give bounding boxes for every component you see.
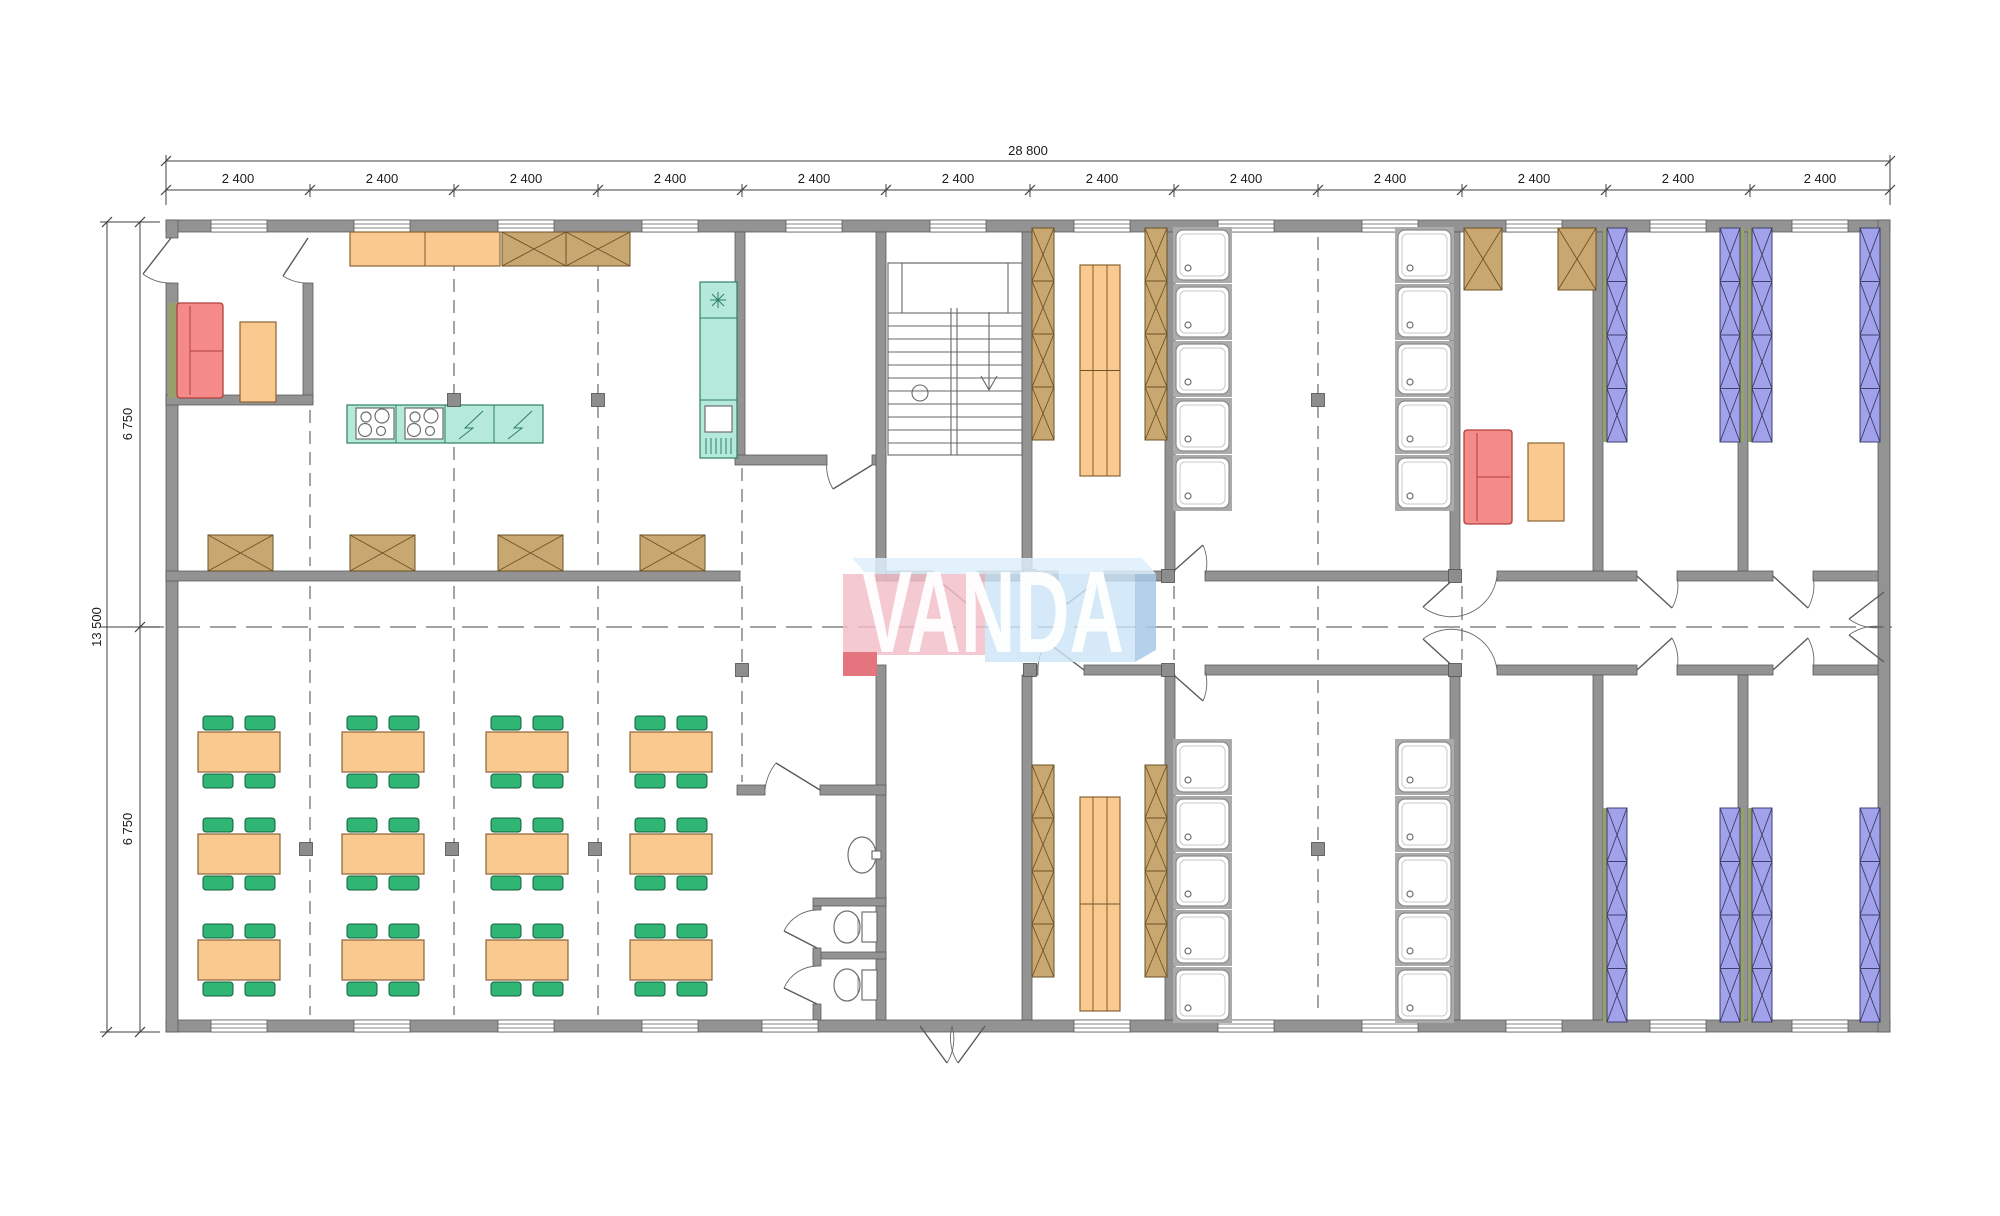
dining-chair bbox=[491, 924, 521, 938]
dining-chair bbox=[389, 716, 419, 730]
door bbox=[1637, 576, 1678, 608]
dim-label-bay: 2 400 bbox=[1086, 171, 1119, 186]
wall-segment bbox=[166, 220, 1890, 232]
wall-segment bbox=[813, 952, 886, 959]
door bbox=[827, 460, 872, 489]
dining-table bbox=[342, 834, 424, 874]
lounge-cabinet bbox=[1558, 228, 1596, 290]
dining-chair bbox=[677, 774, 707, 788]
bunk-bed-column bbox=[1720, 228, 1744, 442]
shower-stall bbox=[1395, 853, 1454, 909]
dining-table bbox=[342, 940, 424, 980]
window bbox=[1074, 220, 1130, 232]
shower-stall bbox=[1173, 227, 1232, 283]
dim-label-bay: 2 400 bbox=[1804, 171, 1837, 186]
window bbox=[498, 1020, 554, 1032]
column-marker bbox=[589, 843, 602, 856]
dining-chair bbox=[491, 876, 521, 890]
wall-segment bbox=[1497, 665, 1637, 675]
dining-chair bbox=[635, 774, 665, 788]
window bbox=[211, 1020, 267, 1032]
cooktop bbox=[356, 408, 394, 439]
locker-cabinet bbox=[1032, 765, 1054, 977]
toilet-tank bbox=[862, 912, 877, 942]
dim-label-bay: 2 400 bbox=[1374, 171, 1407, 186]
column-marker bbox=[1312, 394, 1325, 407]
staircase bbox=[888, 263, 1022, 455]
shower-drain bbox=[1407, 436, 1413, 442]
shower-stall bbox=[1395, 455, 1454, 511]
kitchen-island bbox=[347, 405, 543, 443]
dining-table-group bbox=[342, 818, 424, 890]
dining-chair bbox=[533, 774, 563, 788]
shower-drain bbox=[1407, 834, 1413, 840]
toilet bbox=[834, 969, 877, 1001]
lounge-sofa bbox=[1464, 430, 1512, 524]
shower-drain bbox=[1185, 493, 1191, 499]
shower-stall bbox=[1173, 341, 1232, 397]
shower-drain bbox=[1407, 379, 1413, 385]
dim-label-bay: 2 400 bbox=[1662, 171, 1695, 186]
shower-stall bbox=[1395, 227, 1454, 283]
corner-room-sofa bbox=[168, 303, 223, 398]
dining-table-group bbox=[486, 818, 568, 890]
shower-drain bbox=[1185, 891, 1191, 897]
shower-stall bbox=[1173, 284, 1232, 340]
column-marker bbox=[736, 664, 749, 677]
dining-chair bbox=[245, 818, 275, 832]
wall-segment bbox=[1813, 571, 1878, 581]
column-marker bbox=[1162, 570, 1175, 583]
shower-stall bbox=[1395, 796, 1454, 852]
window bbox=[354, 1020, 410, 1032]
door bbox=[765, 763, 820, 790]
changing-bench bbox=[1080, 265, 1120, 476]
window bbox=[1792, 220, 1848, 232]
dim-label-bay: 2 400 bbox=[798, 171, 831, 186]
bunk-bed-column bbox=[1603, 228, 1627, 442]
window bbox=[1650, 220, 1706, 232]
bunk-bed-column bbox=[1860, 808, 1880, 1022]
wall-segment bbox=[1677, 665, 1773, 675]
dining-table-group bbox=[342, 716, 424, 788]
dim-label-half-height: 6 750 bbox=[120, 408, 135, 441]
dining-table bbox=[486, 732, 568, 772]
shower-drain bbox=[1407, 265, 1413, 271]
dining-table-group bbox=[342, 924, 424, 996]
shower-drain bbox=[1185, 834, 1191, 840]
wall-segment bbox=[735, 455, 827, 465]
dining-chair bbox=[491, 716, 521, 730]
shower-drain bbox=[1407, 777, 1413, 783]
shower-stall bbox=[1395, 739, 1454, 795]
dining-table bbox=[198, 834, 280, 874]
shower-stall bbox=[1173, 796, 1232, 852]
wall-segment bbox=[166, 1020, 1890, 1032]
dim-label-bay: 2 400 bbox=[222, 171, 255, 186]
stair-outline bbox=[888, 263, 1022, 455]
floor-plan-drawing: 28 800 13 500 2 4002 4002 4002 4002 4002… bbox=[0, 0, 2000, 1216]
dining-chair bbox=[635, 818, 665, 832]
wall-segment bbox=[1022, 675, 1032, 1020]
stair-landing bbox=[902, 263, 1008, 313]
dining-chair bbox=[635, 982, 665, 996]
dim-label-bay: 2 400 bbox=[366, 171, 399, 186]
door bbox=[143, 238, 171, 283]
dining-table bbox=[486, 940, 568, 980]
column-marker bbox=[1449, 570, 1462, 583]
dining-chair bbox=[203, 818, 233, 832]
bunk-bed-column bbox=[1748, 228, 1772, 442]
toilet-bowl bbox=[834, 969, 860, 1001]
dining-chair bbox=[533, 876, 563, 890]
serving-table bbox=[498, 535, 563, 571]
door bbox=[1773, 576, 1814, 608]
window bbox=[1792, 1020, 1848, 1032]
wall-segment bbox=[813, 948, 821, 966]
locker-cabinet bbox=[1145, 228, 1167, 440]
shower-stall bbox=[1395, 398, 1454, 454]
serving-table bbox=[640, 535, 705, 571]
stair-start-marker bbox=[912, 385, 928, 401]
kitchen-cabinet bbox=[502, 232, 566, 266]
wall-segment bbox=[303, 283, 313, 403]
window bbox=[786, 220, 842, 232]
shower-stall bbox=[1173, 398, 1232, 454]
dining-table-group bbox=[630, 716, 712, 788]
dining-chair bbox=[347, 716, 377, 730]
kitchen-cabinet bbox=[566, 232, 630, 266]
window bbox=[930, 220, 986, 232]
wall-segment bbox=[1813, 665, 1878, 675]
window bbox=[498, 220, 554, 232]
serving-table bbox=[350, 535, 415, 571]
window bbox=[762, 1020, 818, 1032]
wall-segment bbox=[1677, 571, 1773, 581]
shower-drain bbox=[1407, 493, 1413, 499]
washbasin-tap bbox=[872, 851, 881, 859]
door bbox=[1637, 638, 1678, 670]
wall-segment bbox=[1497, 571, 1637, 581]
window bbox=[642, 1020, 698, 1032]
wall-segment bbox=[1593, 675, 1603, 1020]
toilet bbox=[834, 911, 877, 943]
dining-chair bbox=[347, 982, 377, 996]
dining-chair bbox=[677, 982, 707, 996]
dining-table bbox=[630, 834, 712, 874]
window bbox=[1506, 1020, 1562, 1032]
wall-segment bbox=[820, 785, 886, 795]
dining-chair bbox=[389, 818, 419, 832]
dining-chair bbox=[389, 774, 419, 788]
dining-chair bbox=[677, 876, 707, 890]
shower-stall bbox=[1173, 455, 1232, 511]
window bbox=[1074, 1020, 1130, 1032]
wall-segment bbox=[876, 232, 886, 581]
dining-table-group bbox=[198, 924, 280, 996]
window bbox=[1650, 1020, 1706, 1032]
locker-cabinet bbox=[1145, 765, 1167, 977]
column-marker bbox=[1312, 843, 1325, 856]
bunk-bed-column bbox=[1603, 808, 1627, 1022]
wall-segment bbox=[737, 785, 765, 795]
wall-segment bbox=[813, 906, 821, 910]
dining-chair bbox=[635, 924, 665, 938]
shower-drain bbox=[1185, 777, 1191, 783]
dining-chair bbox=[347, 876, 377, 890]
column-marker bbox=[592, 394, 605, 407]
dining-chair bbox=[389, 876, 419, 890]
dining-chair bbox=[491, 818, 521, 832]
dining-chair bbox=[203, 982, 233, 996]
locker-cabinet bbox=[1032, 228, 1054, 440]
shower-drain bbox=[1407, 891, 1413, 897]
window bbox=[354, 220, 410, 232]
dining-chair bbox=[245, 774, 275, 788]
door bbox=[784, 966, 817, 1004]
changing-bench bbox=[1080, 797, 1120, 1011]
dining-chair bbox=[677, 818, 707, 832]
dining-table-group bbox=[198, 818, 280, 890]
shower-stall bbox=[1173, 853, 1232, 909]
shower-stall bbox=[1173, 739, 1232, 795]
shower-drain bbox=[1185, 379, 1191, 385]
lounge-table bbox=[1528, 443, 1564, 521]
watermark: VANDA bbox=[843, 547, 1156, 677]
dim-total-width: 28 800 bbox=[1008, 143, 1048, 158]
shower-stall bbox=[1395, 910, 1454, 966]
dining-chair bbox=[533, 982, 563, 996]
bunk-bed-column bbox=[1748, 808, 1772, 1022]
dining-table-group bbox=[630, 818, 712, 890]
fridge-freezer-unit bbox=[700, 282, 737, 458]
dining-table-group bbox=[630, 924, 712, 996]
dining-table bbox=[198, 732, 280, 772]
dim-label-bay: 2 400 bbox=[1230, 171, 1263, 186]
dining-table bbox=[486, 834, 568, 874]
column-marker bbox=[1449, 664, 1462, 677]
column-marker bbox=[446, 843, 459, 856]
shower-drain bbox=[1185, 436, 1191, 442]
shower-stall bbox=[1173, 910, 1232, 966]
shower-drain bbox=[1185, 948, 1191, 954]
watermark-text: VANDA bbox=[862, 547, 1124, 677]
shower-drain bbox=[1185, 265, 1191, 271]
column-marker bbox=[1162, 664, 1175, 677]
dining-table bbox=[198, 940, 280, 980]
wall-segment bbox=[813, 898, 886, 906]
bunk-bed-column bbox=[1720, 808, 1744, 1022]
dining-table bbox=[630, 732, 712, 772]
wall-segment bbox=[876, 665, 886, 1020]
dining-chair bbox=[203, 876, 233, 890]
toilet-bowl bbox=[834, 911, 860, 943]
dim-label-bay: 2 400 bbox=[654, 171, 687, 186]
dining-chair bbox=[491, 982, 521, 996]
column-marker bbox=[300, 843, 313, 856]
wall-segment bbox=[1205, 665, 1457, 675]
shower-drain bbox=[1407, 322, 1413, 328]
dining-chair bbox=[203, 774, 233, 788]
watermark-blue-side-face bbox=[1135, 574, 1156, 662]
shower-stall bbox=[1173, 967, 1232, 1023]
dining-chair bbox=[245, 924, 275, 938]
wall-segment bbox=[166, 571, 740, 581]
dining-chair bbox=[347, 818, 377, 832]
door bbox=[1773, 638, 1814, 670]
dining-table-group bbox=[198, 716, 280, 788]
dining-chair bbox=[245, 876, 275, 890]
dining-chair bbox=[203, 924, 233, 938]
dim-label-bay: 2 400 bbox=[510, 171, 543, 186]
shower-stall bbox=[1395, 341, 1454, 397]
sanitary-fixtures bbox=[834, 837, 881, 1001]
bunk-bed-column bbox=[1860, 228, 1880, 442]
window bbox=[1506, 220, 1562, 232]
dining-chair bbox=[389, 924, 419, 938]
serving-table bbox=[208, 535, 273, 571]
dining-chair bbox=[245, 982, 275, 996]
dining-table bbox=[630, 940, 712, 980]
lounge-cabinet bbox=[1464, 228, 1502, 290]
dining-chair bbox=[635, 716, 665, 730]
door bbox=[784, 910, 817, 948]
dim-label-half-height: 6 750 bbox=[120, 813, 135, 846]
dining-chair bbox=[347, 774, 377, 788]
dining-chair bbox=[389, 982, 419, 996]
toilet-tank bbox=[862, 970, 877, 1000]
cooktop bbox=[405, 408, 443, 439]
dining-chair bbox=[347, 924, 377, 938]
dining-chair bbox=[533, 924, 563, 938]
dining-table-group bbox=[486, 924, 568, 996]
column-marker bbox=[448, 394, 461, 407]
door bbox=[283, 238, 308, 283]
dining-chair bbox=[677, 716, 707, 730]
corner-room-table bbox=[240, 322, 276, 402]
shower-drain bbox=[1185, 1005, 1191, 1011]
dining-chair bbox=[203, 716, 233, 730]
dining-chair bbox=[533, 818, 563, 832]
window bbox=[642, 220, 698, 232]
window bbox=[211, 220, 267, 232]
dining-table bbox=[342, 732, 424, 772]
shower-stall bbox=[1395, 284, 1454, 340]
dining-chair bbox=[677, 924, 707, 938]
shower-drain bbox=[1185, 322, 1191, 328]
shower-stall bbox=[1395, 967, 1454, 1023]
dim-label-bay: 2 400 bbox=[1518, 171, 1551, 186]
shower-drain bbox=[1407, 1005, 1413, 1011]
shower-drain bbox=[1407, 948, 1413, 954]
wall-segment bbox=[813, 1004, 821, 1020]
dining-table-group bbox=[486, 716, 568, 788]
wall-segment bbox=[1022, 232, 1032, 581]
dining-chair bbox=[491, 774, 521, 788]
dim-label-bay: 2 400 bbox=[942, 171, 975, 186]
floor-plan-canvas: 28 800 13 500 2 4002 4002 4002 4002 4002… bbox=[0, 0, 2000, 1216]
wall-segment bbox=[166, 220, 178, 238]
dining-chair bbox=[635, 876, 665, 890]
wall-segment bbox=[1205, 571, 1457, 581]
dining-chair bbox=[533, 716, 563, 730]
dining-chair bbox=[245, 716, 275, 730]
